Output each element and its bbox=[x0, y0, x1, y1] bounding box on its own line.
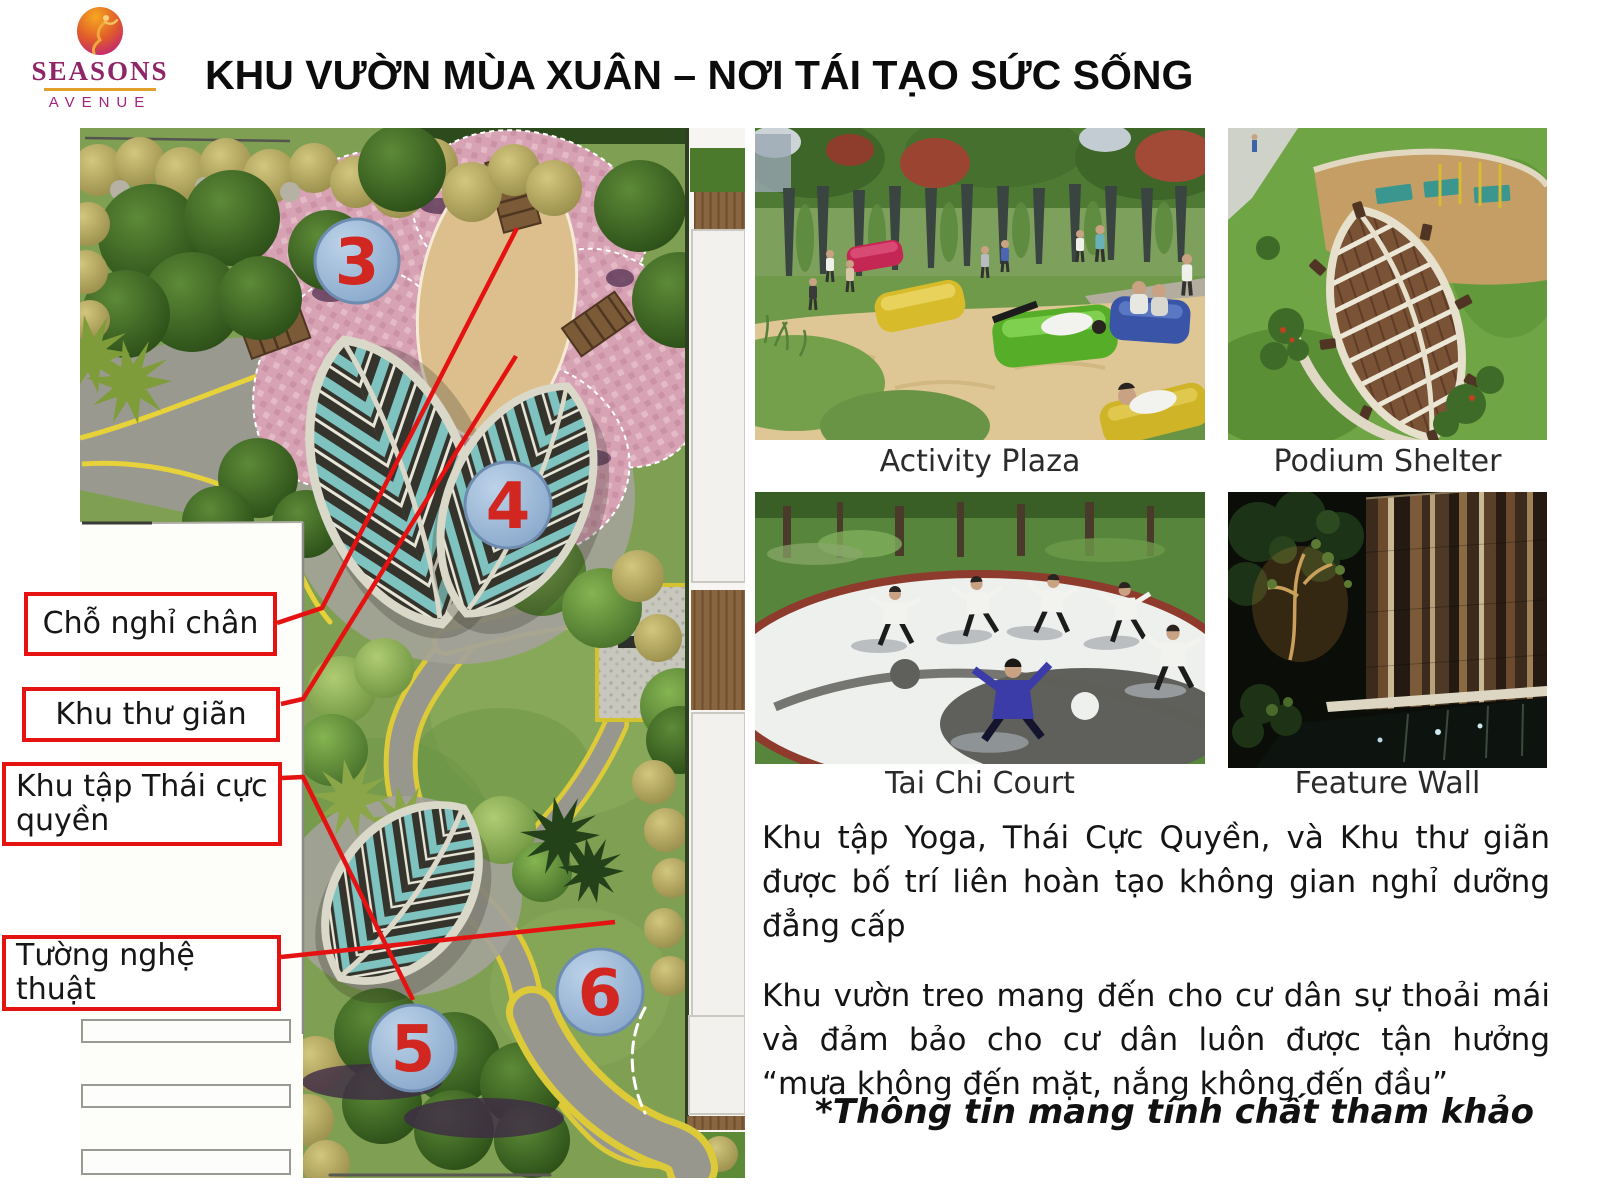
photo-activity-plaza bbox=[755, 128, 1205, 440]
photo-caption-feature-wall: Feature Wall bbox=[1228, 766, 1547, 801]
podium-shelter-illustration bbox=[1228, 128, 1547, 440]
brand-name: SEASONS bbox=[18, 58, 182, 85]
map-marker-6: 6 bbox=[557, 949, 643, 1035]
map-label-tuong-nghe-thuat: Tường nghệ thuật bbox=[2, 935, 281, 1011]
brand-subtitle: AVENUE bbox=[18, 94, 182, 111]
map-marker-5: 5 bbox=[370, 1005, 456, 1091]
slide: SEASONS AVENUE KHU VƯỜN MÙA XUÂN – NƠI T… bbox=[0, 0, 1600, 1200]
photo-caption-activity-plaza: Activity Plaza bbox=[755, 444, 1205, 479]
tai-chi-court-illustration bbox=[755, 492, 1205, 764]
description-text: Khu tập Yoga, Thái Cực Quyền, và Khu thư… bbox=[762, 816, 1550, 1132]
logo-divider bbox=[44, 88, 156, 91]
photo-caption-tai-chi-court: Tai Chi Court bbox=[755, 766, 1205, 801]
paragraph-2: Khu vườn treo mang đến cho cư dân sự tho… bbox=[762, 974, 1550, 1106]
page-title: KHU VƯỜN MÙA XUÂN – NƠI TÁI TẠO SỨC SỐNG bbox=[205, 52, 1305, 99]
disclaimer-note: *Thông tin mang tính chất tham khảo bbox=[815, 1092, 1534, 1132]
wall-panels bbox=[1366, 492, 1547, 710]
photo-caption-podium-shelter: Podium Shelter bbox=[1228, 444, 1547, 479]
map-label-khu-thu-gian: Khu thư giãn bbox=[22, 687, 280, 742]
photo-podium-shelter bbox=[1228, 128, 1547, 440]
marker-number-6: 6 bbox=[578, 957, 623, 1031]
seasons-logo-icon bbox=[70, 6, 130, 58]
activity-plaza-illustration bbox=[755, 128, 1205, 440]
brand-logo: SEASONS AVENUE bbox=[18, 6, 182, 111]
photo-tai-chi-court bbox=[755, 492, 1205, 764]
map-label-cho-nghi-chan: Chỗ nghỉ chân bbox=[24, 592, 277, 656]
photo-feature-wall bbox=[1228, 492, 1547, 768]
marker-number-5: 5 bbox=[391, 1013, 436, 1087]
marker-number-3: 3 bbox=[335, 226, 380, 300]
map-marker-4: 4 bbox=[465, 462, 551, 548]
paragraph-1: Khu tập Yoga, Thái Cực Quyền, và Khu thư… bbox=[762, 816, 1550, 948]
map-label-khu-tap-thai-cuc-quyen: Khu tập Thái cực quyền bbox=[2, 762, 282, 846]
feature-wall-illustration bbox=[1228, 492, 1547, 768]
building-right bbox=[687, 128, 745, 1178]
marker-number-4: 4 bbox=[486, 470, 531, 544]
map-marker-3: 3 bbox=[315, 219, 399, 303]
